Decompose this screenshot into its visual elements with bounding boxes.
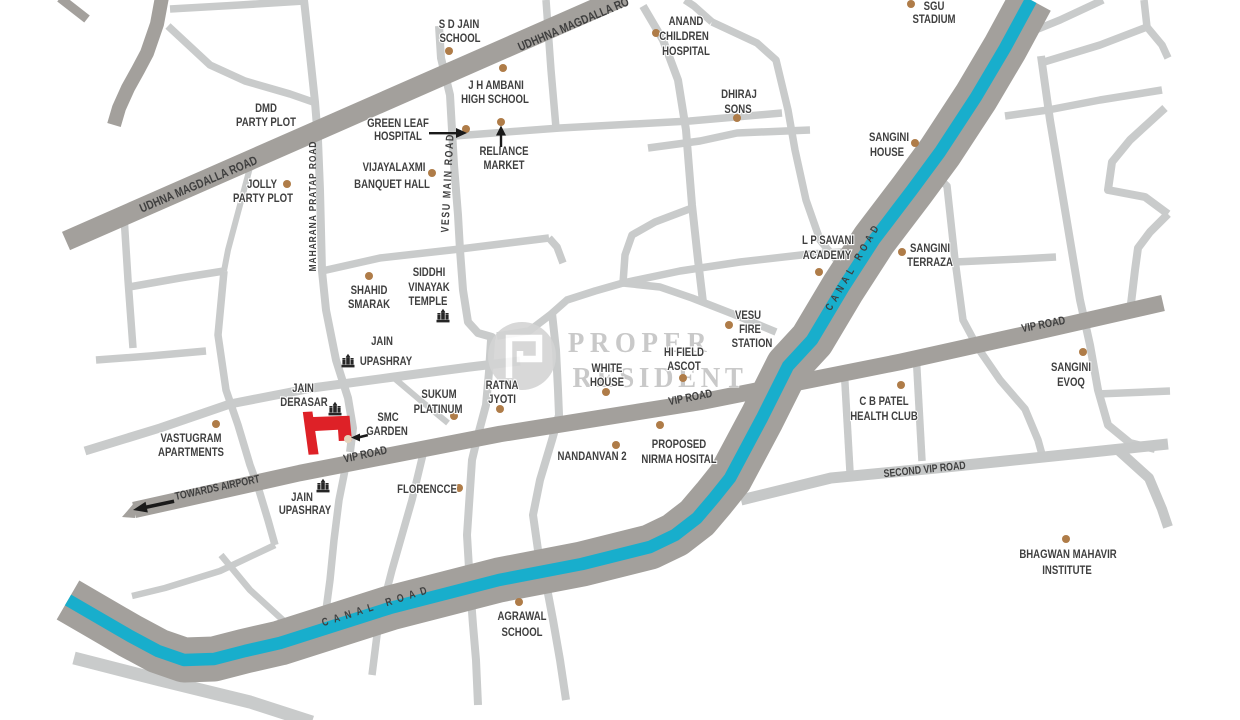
svg-text:SANGINI: SANGINI xyxy=(869,131,909,144)
svg-text:UPASHRAY: UPASHRAY xyxy=(279,504,332,517)
svg-text:NANDANVAN 2: NANDANVAN 2 xyxy=(557,450,626,463)
svg-text:WHITE: WHITE xyxy=(592,362,623,375)
svg-text:SCHOOL: SCHOOL xyxy=(439,32,480,45)
svg-text:DMD: DMD xyxy=(255,102,277,115)
svg-text:SHAHID: SHAHID xyxy=(351,284,388,297)
svg-text:TERRAZA: TERRAZA xyxy=(907,256,953,269)
svg-text:NIRMA HOSITAL: NIRMA HOSITAL xyxy=(641,453,716,466)
svg-text:L P SAVANI: L P SAVANI xyxy=(802,234,854,247)
svg-text:SGU: SGU xyxy=(924,0,945,13)
svg-text:BANQUET HALL: BANQUET HALL xyxy=(354,178,430,191)
svg-text:SMC: SMC xyxy=(377,411,398,424)
svg-text:EVOQ: EVOQ xyxy=(1057,376,1085,389)
svg-text:MARKET: MARKET xyxy=(483,159,524,172)
svg-text:HOUSE: HOUSE xyxy=(590,376,624,389)
svg-text:GARDEN: GARDEN xyxy=(366,425,408,438)
svg-text:UPASHRAY: UPASHRAY xyxy=(360,355,413,368)
svg-text:PARTY PLOT: PARTY PLOT xyxy=(236,116,296,129)
svg-text:VINAYAK: VINAYAK xyxy=(408,281,450,294)
svg-text:PARTY PLOT: PARTY PLOT xyxy=(233,192,293,205)
svg-text:S D JAIN: S D JAIN xyxy=(439,18,480,31)
svg-text:FIRE: FIRE xyxy=(739,323,761,336)
svg-text:SANGINI: SANGINI xyxy=(910,242,950,255)
svg-text:SUKUM: SUKUM xyxy=(421,388,456,401)
svg-text:STADIUM: STADIUM xyxy=(913,13,956,26)
svg-text:ACADEMY: ACADEMY xyxy=(803,249,852,262)
svg-text:HEALTH CLUB: HEALTH CLUB xyxy=(850,410,918,423)
svg-text:PLATINUM: PLATINUM xyxy=(414,403,463,416)
svg-text:JYOTI: JYOTI xyxy=(488,393,516,406)
svg-text:VASTUGRAM: VASTUGRAM xyxy=(160,432,221,445)
svg-text:HOSPITAL: HOSPITAL xyxy=(662,45,710,58)
svg-text:GREEN LEAF: GREEN LEAF xyxy=(367,117,429,130)
svg-text:TEMPLE: TEMPLE xyxy=(409,295,448,308)
svg-text:CHILDREN: CHILDREN xyxy=(659,30,709,43)
svg-text:HOSPITAL: HOSPITAL xyxy=(374,130,422,143)
svg-text:RELIANCE: RELIANCE xyxy=(479,145,528,158)
svg-text:STATION: STATION xyxy=(732,337,773,350)
svg-text:AGRAWAL: AGRAWAL xyxy=(497,610,546,623)
svg-text:PROPOSED: PROPOSED xyxy=(652,438,707,451)
svg-text:HIGH SCHOOL: HIGH SCHOOL xyxy=(461,93,529,106)
svg-text:APARTMENTS: APARTMENTS xyxy=(158,446,224,459)
svg-text:SANGINI: SANGINI xyxy=(1051,361,1091,374)
svg-text:SCHOOL: SCHOOL xyxy=(501,626,542,639)
svg-text:DHIRAJ: DHIRAJ xyxy=(721,88,757,101)
svg-text:FLORENCCE: FLORENCCE xyxy=(397,483,457,496)
svg-text:MAHARANA PRATAP ROAD: MAHARANA PRATAP ROAD xyxy=(307,141,319,272)
svg-text:SIDDHI: SIDDHI xyxy=(413,266,446,279)
svg-text:INSTITUTE: INSTITUTE xyxy=(1042,564,1092,577)
svg-text:JAIN: JAIN xyxy=(292,382,314,395)
svg-text:C B PATEL: C B PATEL xyxy=(859,395,909,408)
svg-text:BHAGWAN MAHAVIR: BHAGWAN MAHAVIR xyxy=(1019,548,1116,561)
svg-text:DERASAR: DERASAR xyxy=(280,396,328,409)
svg-text:ASCOT: ASCOT xyxy=(667,360,701,373)
svg-text:VIJAYALAXMI: VIJAYALAXMI xyxy=(363,161,426,174)
svg-text:HOUSE: HOUSE xyxy=(870,146,904,159)
svg-text:VESU: VESU xyxy=(735,309,761,322)
svg-text:JAIN: JAIN xyxy=(291,491,313,504)
svg-text:ANAND: ANAND xyxy=(669,15,704,28)
svg-text:SMARAK: SMARAK xyxy=(348,298,390,311)
svg-text:J H AMBANI: J H AMBANI xyxy=(468,79,524,92)
svg-text:SONS: SONS xyxy=(724,103,751,116)
svg-text:JOLLY: JOLLY xyxy=(247,178,278,191)
svg-text:RATNA: RATNA xyxy=(486,379,519,392)
svg-text:HI FIELD: HI FIELD xyxy=(664,346,704,359)
svg-text:JAIN: JAIN xyxy=(371,335,393,348)
